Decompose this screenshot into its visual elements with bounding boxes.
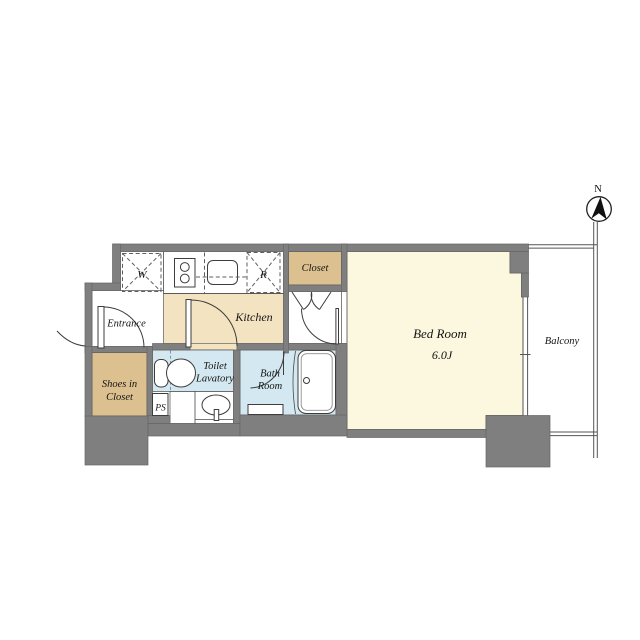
toilet-label-line1: Toilet — [203, 361, 228, 372]
stove-burner-icon — [180, 263, 189, 272]
wall-bottom-bath — [240, 415, 347, 436]
floor-plan-canvas: N W R Closet Kitchen Entrance Shoes in C… — [0, 0, 640, 640]
bath-label-line1: Bath — [260, 369, 280, 380]
bath-label-line2: Room — [257, 381, 283, 392]
toilet-bowl-icon — [167, 359, 196, 387]
compass-north-label: N — [594, 184, 602, 195]
fridge-label: R — [259, 269, 267, 281]
wall-under-ps — [148, 416, 170, 424]
entrance-door-leaf — [98, 307, 104, 349]
floor-plan-drawing: N W R Closet Kitchen Entrance Shoes in C… — [0, 0, 640, 640]
sink-icon — [208, 261, 238, 285]
wall-shoes-top — [85, 347, 153, 353]
shoes-closet-label-line1: Shoes in — [102, 379, 137, 390]
wall-kitchen-hall — [284, 244, 289, 353]
wall-bottom-lavatory — [148, 424, 240, 437]
toilet-label-line2: Lavatory — [195, 374, 234, 385]
bath-step-counter — [248, 405, 283, 415]
closet-label: Closet — [302, 263, 330, 274]
entrance-door-outer-arc — [57, 331, 86, 346]
wall-top — [113, 244, 529, 252]
north-arrow-icon: N — [587, 184, 612, 221]
wall-bedroom-left-upper — [342, 244, 348, 292]
bedroom-name-label: Bed Room — [413, 326, 467, 341]
washer-label: W — [137, 269, 147, 281]
ps-label: PS — [154, 404, 166, 414]
wall-left-lower — [85, 347, 92, 417]
washbasin-faucet-icon — [214, 410, 219, 421]
entrance-label: Entrance — [106, 319, 146, 330]
bedroom-door-leaf — [336, 309, 339, 345]
bathtub-drain-icon — [304, 378, 310, 384]
wall-block-bottom-left — [85, 416, 148, 465]
bedroom-size-label: 6.0J — [432, 348, 453, 362]
kitchen-door-leaf — [186, 300, 191, 348]
wall-bottom-bedroom — [347, 430, 486, 438]
wall-midband-west — [153, 344, 191, 351]
wall-shoes-right — [147, 347, 153, 424]
balcony-label: Balcony — [545, 336, 580, 347]
kitchen-doorway-floor — [190, 344, 237, 351]
wall-top-right-jog-a — [510, 252, 529, 274]
kitchen-label: Kitchen — [234, 310, 272, 324]
shoes-closet-label-line2: Closet — [106, 392, 134, 403]
wall-midband-east — [237, 344, 347, 351]
wall-lavatory-bath — [234, 350, 241, 424]
toilet-tank-icon — [155, 360, 169, 388]
wall-top-right-jog-b — [522, 273, 529, 297]
wall-left-upper — [85, 283, 92, 353]
stove-burner-icon — [180, 274, 189, 283]
wall-block-bottom-right — [486, 416, 550, 468]
wall-closet-bottom — [289, 285, 348, 292]
